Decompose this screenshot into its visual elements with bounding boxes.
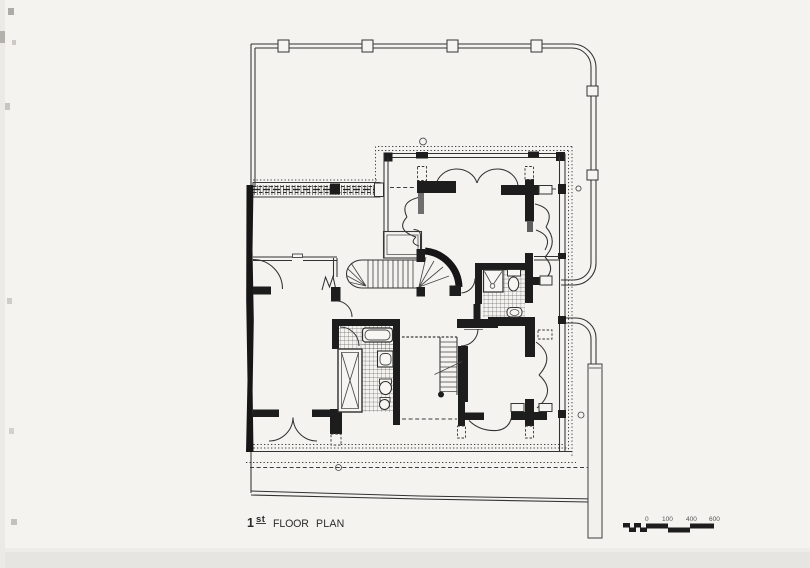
svg-text:1: 1 [247,516,254,530]
svg-text:0: 0 [645,516,649,523]
svg-text:FLOOR: FLOOR [273,518,309,530]
svg-text:400: 400 [686,516,697,523]
svg-text:600: 600 [709,516,720,523]
svg-text:PLAN: PLAN [316,518,344,530]
svg-text:100: 100 [662,516,673,523]
